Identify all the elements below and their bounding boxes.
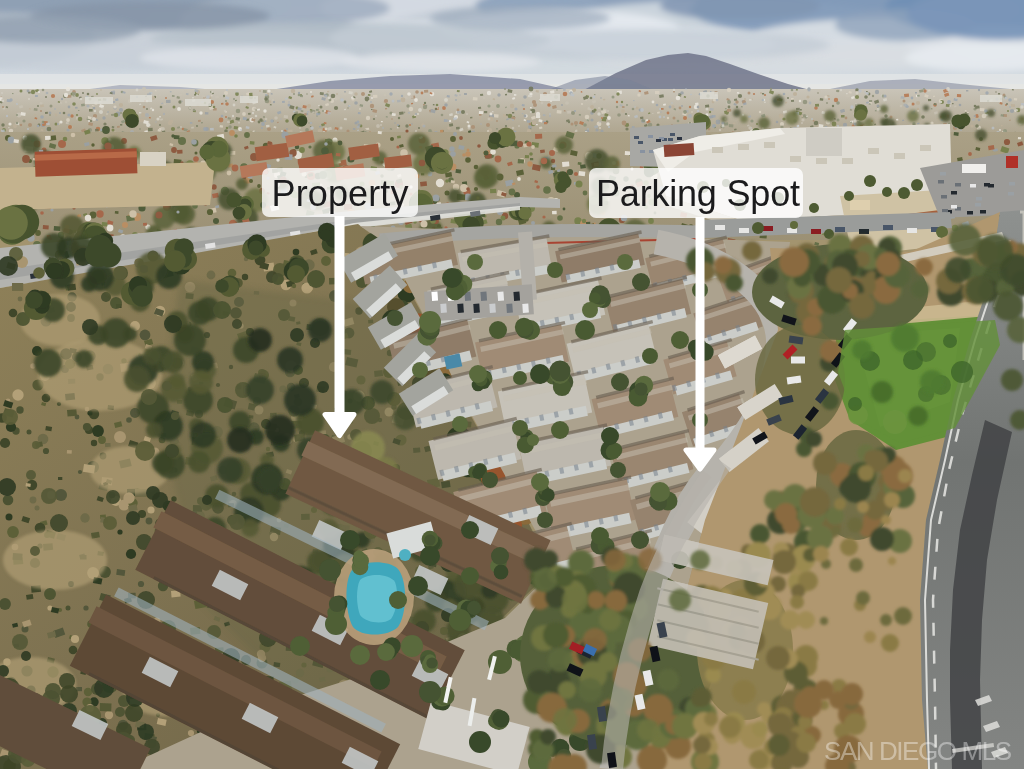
svg-text:SAN DIEGO MLS: SAN DIEGO MLS [824, 736, 1014, 766]
svg-text:Property: Property [272, 173, 409, 214]
svg-text:Parking Spot: Parking Spot [596, 173, 800, 214]
